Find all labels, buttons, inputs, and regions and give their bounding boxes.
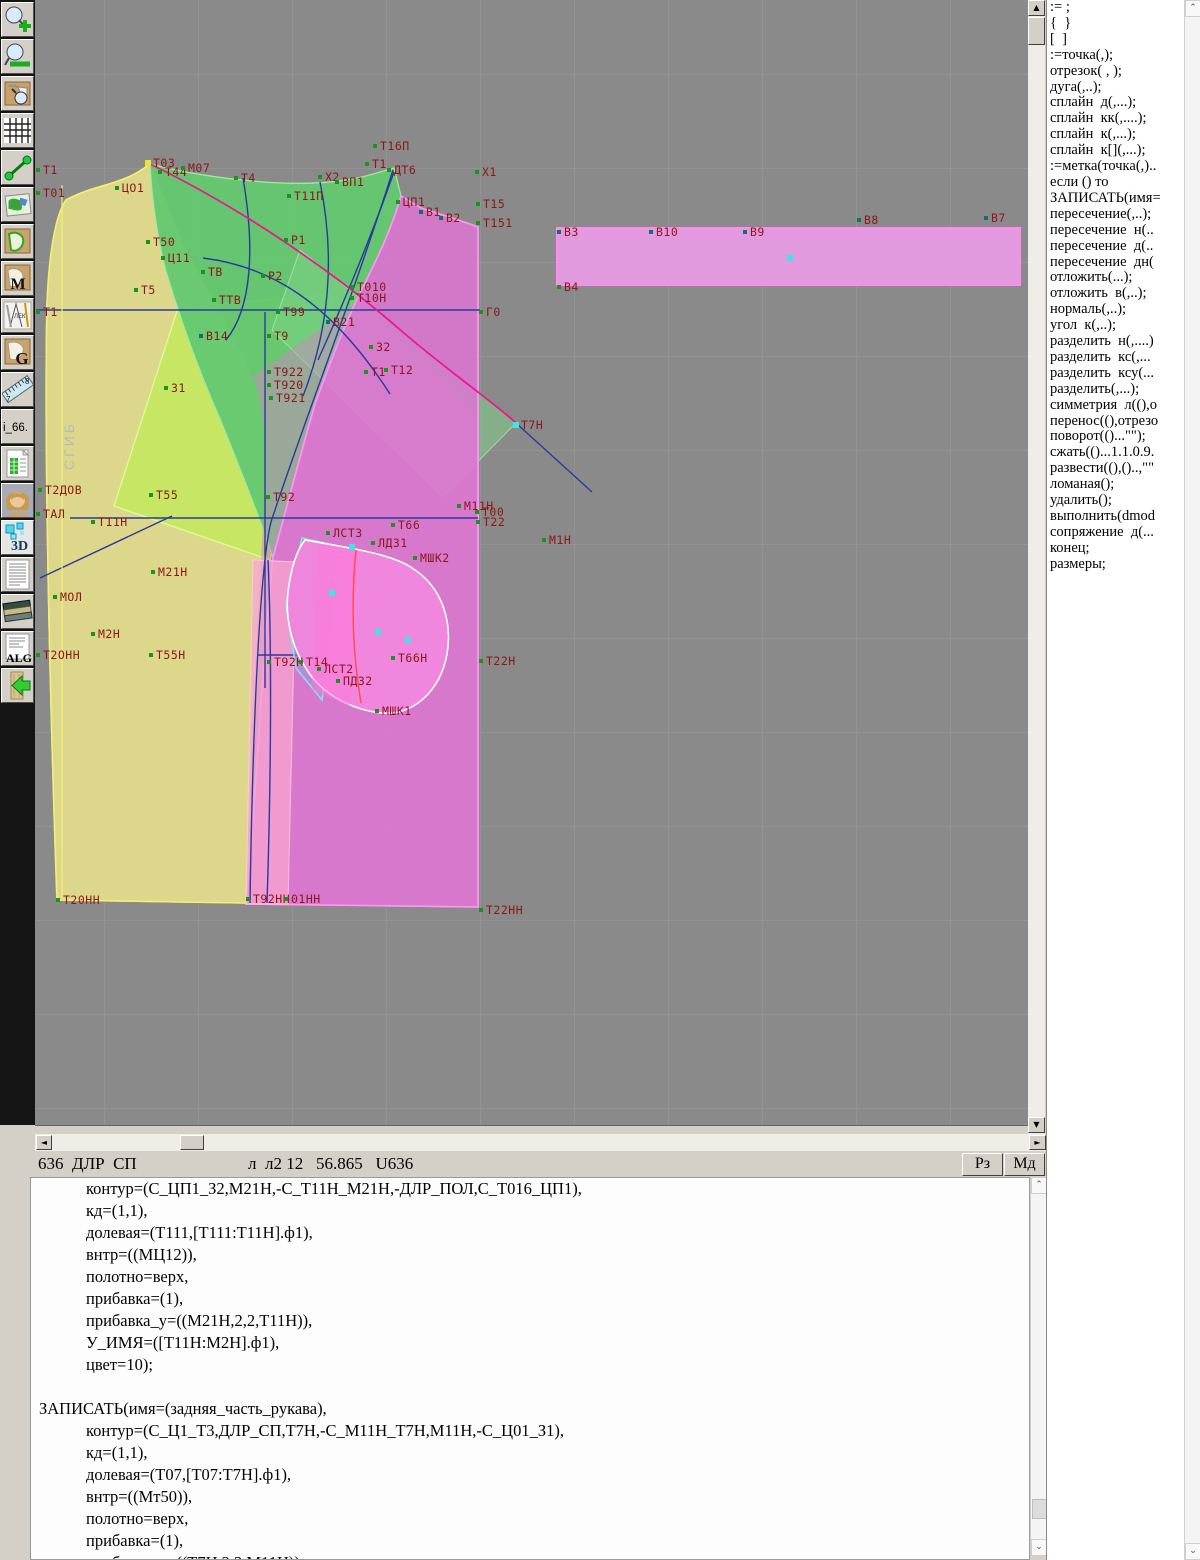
point-label: Т66Н — [398, 651, 428, 665]
point-marker — [53, 595, 57, 599]
toolbar-button-preview[interactable] — [1, 76, 34, 111]
canvas-vscroll-thumb[interactable] — [1028, 17, 1045, 45]
toolbar-button-table-doc[interactable] — [1, 446, 34, 481]
point-marker — [38, 488, 42, 492]
point-marker — [475, 510, 479, 514]
toolbar-button-three-d[interactable]: 3D — [1, 520, 34, 555]
portrait-icon — [2, 484, 33, 517]
command-item[interactable]: :=точка(,); — [1047, 48, 1185, 64]
point-label: ДТ6 — [394, 163, 416, 177]
command-item[interactable]: пересечение(,..); — [1047, 207, 1185, 223]
point-marker — [336, 679, 340, 683]
point-label: В21 — [333, 315, 355, 329]
point-label: В9 — [750, 225, 765, 239]
command-item[interactable]: :=метка(точка(,).. — [1047, 159, 1185, 175]
point-marker — [201, 270, 205, 274]
toolbar-button-i66[interactable]: i_66. — [1, 409, 34, 444]
command-item[interactable]: конец; — [1047, 541, 1185, 557]
point-marker — [181, 166, 185, 170]
point-marker — [349, 544, 355, 550]
svg-text:3D: 3D — [11, 539, 28, 554]
point-label: З1 — [171, 381, 186, 395]
point-label: Х1 — [482, 165, 497, 179]
point-marker — [476, 520, 480, 524]
toolbar-button-lekalo[interactable] — [1, 224, 34, 259]
map-icon — [2, 188, 33, 221]
point-marker — [375, 629, 381, 635]
point-marker — [115, 186, 119, 190]
code-line: прибавка=(1), — [31, 1288, 1029, 1310]
code-line: кд=(1,1), — [31, 1200, 1029, 1222]
panel-scroll-down-arrow[interactable]: ⌄ — [1185, 1543, 1200, 1560]
exit-icon — [2, 669, 33, 702]
point-label: Т11П — [294, 189, 324, 203]
zoom-out-icon — [2, 40, 33, 73]
point-label: Т921 — [276, 391, 306, 405]
point-marker — [212, 298, 216, 302]
command-item[interactable]: нормаль(,..); — [1047, 302, 1185, 318]
point-marker — [161, 256, 165, 260]
point-marker — [149, 653, 153, 657]
point-marker — [269, 396, 273, 400]
command-item[interactable]: сплайн к[](,...); — [1047, 143, 1185, 159]
md-button[interactable]: Мд — [1004, 1153, 1045, 1176]
point-marker — [419, 210, 423, 214]
point-marker — [373, 144, 377, 148]
point-marker — [350, 285, 354, 289]
point-marker — [326, 320, 330, 324]
pattern-canvas[interactable]: СГИБ Т1Т01ЦО1Т03Т44М07Т4Х2ВП1Т16ПТ1ДТ6Т1… — [35, 0, 1028, 1126]
point-marker — [151, 570, 155, 574]
code-line: долевая=(Т07,[Т07:Т7Н].ф1), — [31, 1464, 1029, 1486]
point-label: Т1 — [371, 365, 386, 379]
code-line: контур=(С_ЦП1_З2,М21Н,-С_Т11Н_М21Н,-ДЛР_… — [31, 1178, 1029, 1200]
command-item[interactable]: сжать(()...1.1.0.9. — [1047, 445, 1185, 461]
toolbar-button-lekalo-m[interactable]: M — [1, 261, 34, 296]
panel-vscrollbar: ⌃ ⌄ — [1184, 0, 1200, 1560]
toolbar-button-books[interactable] — [1, 594, 34, 629]
canvas-scroll-right-arrow[interactable]: ► — [1029, 1135, 1046, 1150]
point-label: Р1 — [291, 233, 306, 247]
pattern-drawing: СГИБ Т1Т01ЦО1Т03Т44М07Т4Х2ВП1Т16ПТ1ДТ6Т1… — [35, 0, 1028, 1125]
panel-scroll-up-arrow[interactable]: ⌃ — [1185, 0, 1200, 17]
command-item[interactable]: разделить н(,....) — [1047, 334, 1185, 350]
code-line: прибавка=(1), — [31, 1530, 1029, 1552]
canvas-hscroll-thumb[interactable] — [180, 1135, 204, 1150]
command-item[interactable]: перенос((),отрезо — [1047, 414, 1185, 430]
code-line: цвет=10); — [31, 1354, 1029, 1376]
code-margin — [0, 1177, 30, 1560]
point-label: ЛСТ3 — [333, 526, 363, 540]
drafting-icon: ЛЕК — [2, 299, 33, 332]
command-item[interactable]: отложить в(,..); — [1047, 286, 1185, 302]
code-line: ЗАПИСАТЬ(имя=(задняя_часть_рукава), — [31, 1398, 1029, 1420]
point-marker — [557, 285, 561, 289]
toolbar-button-drafting[interactable]: ЛЕК — [1, 298, 34, 333]
alg-icon: ALG — [2, 632, 33, 665]
status-bar: 636 ДЛР СП л л2 12 56.865 U636 Рз Мд — [0, 1151, 1046, 1177]
point-marker — [369, 345, 373, 349]
toolbar-button-zoom-in[interactable] — [1, 2, 34, 37]
point-marker — [146, 240, 150, 244]
svg-text:7: 7 — [6, 395, 11, 404]
point-marker — [284, 238, 288, 242]
toolbar-button-map[interactable] — [1, 187, 34, 222]
fold-label: СГИБ — [61, 421, 77, 470]
point-label: ВП1 — [342, 175, 364, 189]
point-label: ТВ — [208, 265, 223, 279]
point-label: З2 — [376, 340, 391, 354]
point-marker — [387, 168, 391, 172]
point-marker — [479, 310, 483, 314]
command-item[interactable]: развести((),()..,"" — [1047, 461, 1185, 477]
svg-text:ALG: ALG — [6, 651, 32, 665]
point-label: ЦП1 — [403, 195, 425, 209]
point-marker — [365, 162, 369, 166]
point-label: В2 — [446, 211, 461, 225]
lekalo-m-icon: M — [2, 262, 33, 295]
code-line: контур=(С_Ц1_Т3,ДЛР_СП,Т7Н,-С_М11Н_Т7Н,М… — [31, 1420, 1029, 1442]
command-item[interactable]: пересечение дн( — [1047, 255, 1185, 271]
app-window: { "toolbar": { "items": [ {"id":"zoom-in… — [0, 0, 1200, 1560]
code-line: прибавка_у=((Т7Н,2,2,М11Н)), — [31, 1552, 1029, 1560]
command-item[interactable]: пересечение н(.. — [1047, 223, 1185, 239]
point-label: ТТВ — [219, 293, 241, 307]
canvas-scroll-up-arrow[interactable]: ▲ — [1028, 0, 1045, 16]
point-marker — [36, 310, 40, 314]
grid-icon — [2, 114, 33, 147]
i66-icon: i_66. — [2, 410, 33, 443]
point-label: В10 — [656, 225, 678, 239]
toolbar-button-alg[interactable]: ALG — [1, 631, 34, 666]
point-marker — [164, 386, 168, 390]
command-item[interactable]: сплайн д(,...); — [1047, 95, 1185, 111]
point-marker — [787, 255, 793, 261]
code-line — [31, 1376, 1029, 1398]
code-line: полотно=верх, — [31, 1508, 1029, 1530]
point-label: Т16П — [380, 139, 410, 153]
point-marker — [267, 660, 271, 664]
point-label: Т66 — [398, 518, 420, 532]
point-label: В3 — [564, 225, 579, 239]
point-marker — [317, 667, 321, 671]
point-marker — [984, 216, 988, 220]
point-marker — [284, 897, 288, 901]
point-marker — [36, 168, 40, 172]
point-marker — [329, 590, 335, 596]
command-item[interactable]: дуга(,..); — [1047, 80, 1185, 96]
point-marker — [145, 160, 151, 166]
point-marker — [149, 493, 153, 497]
preview-icon — [2, 77, 33, 110]
point-label: В1 — [426, 205, 441, 219]
svg-text:ЛЕК: ЛЕК — [14, 314, 26, 320]
point-label: В7 — [991, 211, 1006, 225]
command-item[interactable]: удалить(); — [1047, 493, 1185, 509]
code-line: полотно=верх, — [31, 1266, 1029, 1288]
text-doc-icon — [2, 558, 33, 591]
point-label: Т2ОНН — [43, 648, 80, 662]
point-marker — [91, 520, 95, 524]
point-label: Т55 — [156, 488, 178, 502]
code-scroll-up-arrow[interactable]: ⌃ — [1031, 1177, 1047, 1194]
point-label: Т20НН — [63, 893, 100, 907]
zoom-in-icon — [2, 3, 33, 36]
command-item[interactable]: поворот(()...""); — [1047, 429, 1185, 445]
command-item[interactable]: [ ] — [1047, 32, 1185, 48]
point-label: Т92 — [273, 490, 295, 504]
toolbar-button-segment[interactable] — [1, 150, 34, 185]
command-item[interactable]: отложить(...); — [1047, 270, 1185, 286]
svg-text:8: 8 — [25, 377, 30, 386]
point-marker — [134, 288, 138, 292]
point-label: Т01 — [43, 186, 65, 200]
toolbar-button-exit[interactable] — [1, 668, 34, 703]
point-marker — [199, 334, 203, 338]
command-item[interactable]: отрезок( , ); — [1047, 64, 1185, 80]
point-marker — [267, 334, 271, 338]
point-label: Т15 — [483, 197, 505, 211]
command-item[interactable]: пересечение д(.. — [1047, 239, 1185, 255]
point-marker — [318, 175, 322, 179]
point-label: Т920 — [274, 378, 304, 392]
command-item[interactable]: разделить кс(,... — [1047, 350, 1185, 366]
point-label: Т11Н — [98, 515, 128, 529]
command-item[interactable]: сопряжение д(... — [1047, 525, 1185, 541]
command-item[interactable]: := ; — [1047, 0, 1185, 16]
point-marker — [384, 368, 388, 372]
command-item[interactable]: { } — [1047, 16, 1185, 32]
point-label: Т22 — [483, 515, 505, 529]
point-marker — [364, 370, 368, 374]
toolbar-button-text-doc[interactable] — [1, 557, 34, 592]
point-label: Т22НН — [486, 903, 523, 917]
point-marker — [267, 383, 271, 387]
left-toolbar: MЛЕКG78i_66.3DALG — [0, 0, 35, 1125]
toolbar-button-portrait[interactable] — [1, 483, 34, 518]
status-left-text: 636 ДЛР СП — [38, 1154, 137, 1174]
point-marker — [457, 504, 461, 508]
point-marker — [405, 637, 411, 643]
point-marker — [396, 200, 400, 204]
code-editor[interactable]: контур=(С_ЦП1_З2,М21Н,-С_Т11Н_М21Н,-ДЛР_… — [30, 1177, 1030, 1560]
code-vscroll-thumb[interactable] — [1032, 1499, 1047, 1519]
three-d-icon: 3D — [2, 521, 33, 554]
command-panel: := ;{ }[ ]:=точка(,);отрезок( , );дуга(,… — [1046, 0, 1185, 1560]
point-label: Р2 — [268, 269, 283, 283]
point-marker — [36, 191, 40, 195]
point-label: Т922 — [274, 365, 304, 379]
books-icon — [2, 595, 33, 628]
point-label: Т1 — [43, 305, 58, 319]
code-line: кд=(1,1), — [31, 1442, 1029, 1464]
segment-icon — [2, 151, 33, 184]
command-item[interactable]: разделить(,...); — [1047, 382, 1185, 398]
point-label: Т99 — [283, 305, 305, 319]
point-label: Т2ДОВ — [45, 483, 82, 497]
command-item[interactable]: симметрия л((),о — [1047, 398, 1185, 414]
point-marker — [476, 202, 480, 206]
point-marker — [266, 495, 270, 499]
code-line: внтр=((МЦ12)), — [31, 1244, 1029, 1266]
canvas-scroll-down-arrow[interactable]: ▼ — [1028, 1117, 1045, 1133]
point-marker — [649, 230, 653, 234]
point-label: М07 — [188, 161, 210, 175]
code-line: долевая=(Т111,[Т111:Т11Н].ф1), — [31, 1222, 1029, 1244]
command-item[interactable]: ломаная(); — [1047, 477, 1185, 493]
point-label: В4 — [564, 280, 579, 294]
canvas-vscrollbar: ▲ ▼ — [1028, 0, 1045, 1134]
lekalo-g-icon: G — [2, 336, 33, 369]
command-item[interactable]: угол к(,..); — [1047, 318, 1185, 334]
point-label: Т50 — [153, 235, 175, 249]
point-marker — [36, 512, 40, 516]
point-label: Т12 — [391, 363, 413, 377]
point-label: МШК2 — [420, 551, 450, 565]
command-item[interactable]: размеры; — [1047, 557, 1185, 573]
point-marker — [261, 274, 265, 278]
status-info-text: л л2 12 56.865 U636 — [248, 1154, 413, 1174]
lekalo-icon — [2, 225, 33, 258]
point-label: ПД32 — [343, 674, 373, 688]
point-marker — [479, 659, 483, 663]
point-marker — [557, 230, 561, 234]
command-item[interactable]: разделить ксу(... — [1047, 366, 1185, 382]
point-label: Г0 — [486, 305, 501, 319]
point-label: Т55Н — [156, 648, 186, 662]
point-marker — [56, 898, 60, 902]
point-label: ТАЛ — [43, 507, 65, 521]
table-doc-icon — [2, 447, 33, 480]
point-marker — [375, 709, 379, 713]
point-marker — [476, 221, 480, 225]
point-marker — [439, 216, 443, 220]
point-marker — [513, 422, 519, 428]
point-marker — [743, 230, 747, 234]
code-scroll-down-arrow[interactable]: ⌄ — [1031, 1539, 1047, 1556]
toolbar-button-grid[interactable] — [1, 113, 34, 148]
command-item[interactable]: сплайн к(,...); — [1047, 127, 1185, 143]
point-label: М21Н — [158, 565, 188, 579]
point-label: Т5 — [141, 283, 156, 297]
toolbar-button-lekalo-g[interactable]: G — [1, 335, 34, 370]
point-marker — [391, 656, 395, 660]
point-marker — [335, 180, 339, 184]
svg-text:G: G — [15, 349, 28, 368]
point-marker — [234, 176, 238, 180]
point-label: Т10Н — [357, 291, 387, 305]
point-label: В14 — [206, 329, 228, 343]
point-label: Т1 — [43, 163, 58, 177]
point-label: Т1 — [372, 157, 387, 171]
point-marker — [350, 296, 354, 300]
point-label: ЦО1 — [122, 181, 144, 195]
rz-button[interactable]: Рз — [962, 1153, 1003, 1176]
point-marker — [413, 556, 417, 560]
point-marker — [542, 538, 546, 542]
ruler-icon: 78 — [2, 373, 33, 406]
code-line: внтр=((Мт50)), — [31, 1486, 1029, 1508]
point-label: М1Н — [549, 533, 571, 547]
command-item[interactable]: сплайн кк(,....); — [1047, 111, 1185, 127]
point-label: МОЛ — [60, 590, 82, 604]
point-marker — [475, 170, 479, 174]
point-marker — [91, 632, 95, 636]
command-item[interactable]: если () то — [1047, 175, 1185, 191]
svg-text:M: M — [10, 276, 25, 293]
point-marker — [391, 523, 395, 527]
point-label: Т9 — [274, 329, 289, 343]
canvas-hscrollbar: ◄ ► — [35, 1134, 1046, 1151]
code-line: У_ИМЯ=([Т11Н:М2Н].ф1), — [31, 1332, 1029, 1354]
point-marker — [267, 370, 271, 374]
point-label: М2Н — [98, 627, 120, 641]
point-marker — [158, 170, 162, 174]
canvas-scroll-left-arrow[interactable]: ◄ — [36, 1135, 52, 1150]
svg-text:i_66.: i_66. — [3, 422, 28, 434]
point-label: ЛД31 — [378, 536, 408, 550]
point-label: В8 — [864, 213, 879, 227]
point-label: Т151 — [483, 216, 513, 230]
point-marker — [299, 660, 303, 664]
point-marker — [276, 310, 280, 314]
command-item[interactable]: ЗАПИСАТЬ(имя= — [1047, 191, 1185, 207]
point-label: Т22Н — [486, 654, 516, 668]
point-marker — [326, 531, 330, 535]
point-marker — [36, 653, 40, 657]
point-marker — [287, 194, 291, 198]
point-marker — [479, 908, 483, 912]
code-line: прибавка_у=((М21Н,2,2,Т11Н)), — [31, 1310, 1029, 1332]
point-marker — [371, 541, 375, 545]
toolbar-button-ruler[interactable]: 78 — [1, 372, 34, 407]
toolbar-button-zoom-out[interactable] — [1, 39, 34, 74]
point-label: Ц11 — [168, 251, 190, 265]
point-label: Т4 — [241, 171, 256, 185]
point-label: 01НН — [291, 892, 321, 906]
command-item[interactable]: выполнить(dmod — [1047, 509, 1185, 525]
point-label: Т7Н — [521, 418, 543, 432]
point-marker — [246, 897, 250, 901]
point-label: МШК1 — [382, 704, 412, 718]
point-marker — [857, 218, 861, 222]
